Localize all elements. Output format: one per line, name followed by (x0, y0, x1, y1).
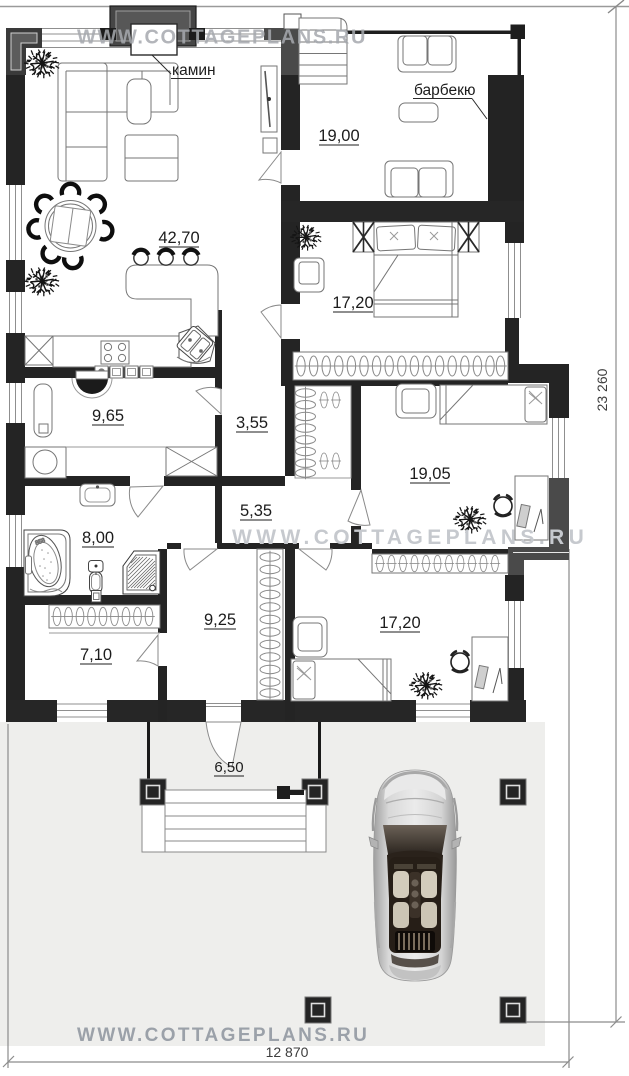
svg-text:17,20: 17,20 (379, 614, 420, 632)
svg-text:камин: камин (172, 62, 216, 79)
svg-text:5,35: 5,35 (240, 502, 272, 520)
svg-text:6,50: 6,50 (214, 759, 243, 776)
svg-text:12 870: 12 870 (266, 1044, 309, 1060)
svg-text:23 260: 23 260 (594, 368, 610, 411)
svg-text:WWW.COTTAGEPLANS.RU: WWW.COTTAGEPLANS.RU (77, 1025, 369, 1046)
svg-text:8,00: 8,00 (82, 529, 114, 547)
svg-text:19,05: 19,05 (409, 465, 450, 483)
svg-text:42,70: 42,70 (158, 229, 199, 247)
svg-text:WWW.COTTAGEPLANS.RU: WWW.COTTAGEPLANS.RU (232, 526, 588, 549)
svg-text:3,55: 3,55 (236, 414, 268, 432)
svg-text:19,00: 19,00 (318, 127, 359, 145)
svg-text:барбекю: барбекю (414, 82, 476, 99)
svg-text:17,20: 17,20 (332, 294, 373, 312)
svg-text:9,65: 9,65 (92, 407, 124, 425)
svg-text:9,25: 9,25 (204, 611, 236, 629)
svg-text:WWW.COTTAGEPLANS.RU: WWW.COTTAGEPLANS.RU (77, 27, 367, 49)
svg-text:7,10: 7,10 (80, 646, 112, 664)
